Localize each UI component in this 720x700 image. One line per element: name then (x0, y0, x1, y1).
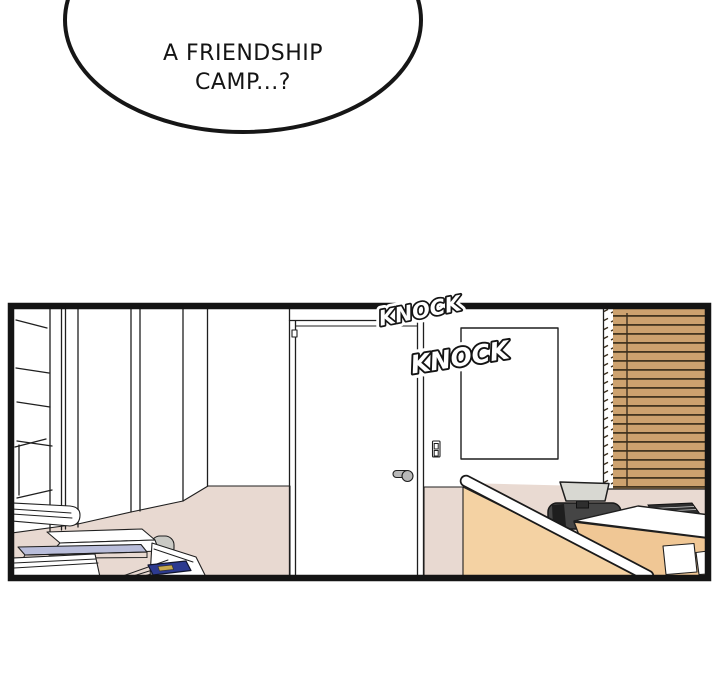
door-hinge (292, 330, 297, 337)
binder-label (158, 565, 174, 571)
comic-page: KNOCK KNOCK KNOCK KNOCK A FRIENDSHIP CAM… (0, 0, 720, 700)
floor-right-of-door (424, 487, 464, 577)
desk-paper (663, 544, 697, 575)
bubble-text-line1: A FRIENDSHIP (163, 41, 323, 66)
bubble-text-line2: CAMP...? (195, 70, 291, 95)
light-switch (433, 441, 441, 457)
speech-bubble: A FRIENDSHIP CAMP...? (65, 0, 421, 132)
office-scene (12, 307, 710, 579)
comic-artwork: KNOCK KNOCK KNOCK KNOCK A FRIENDSHIP CAM… (0, 0, 720, 700)
window-blinds (603, 309, 710, 489)
